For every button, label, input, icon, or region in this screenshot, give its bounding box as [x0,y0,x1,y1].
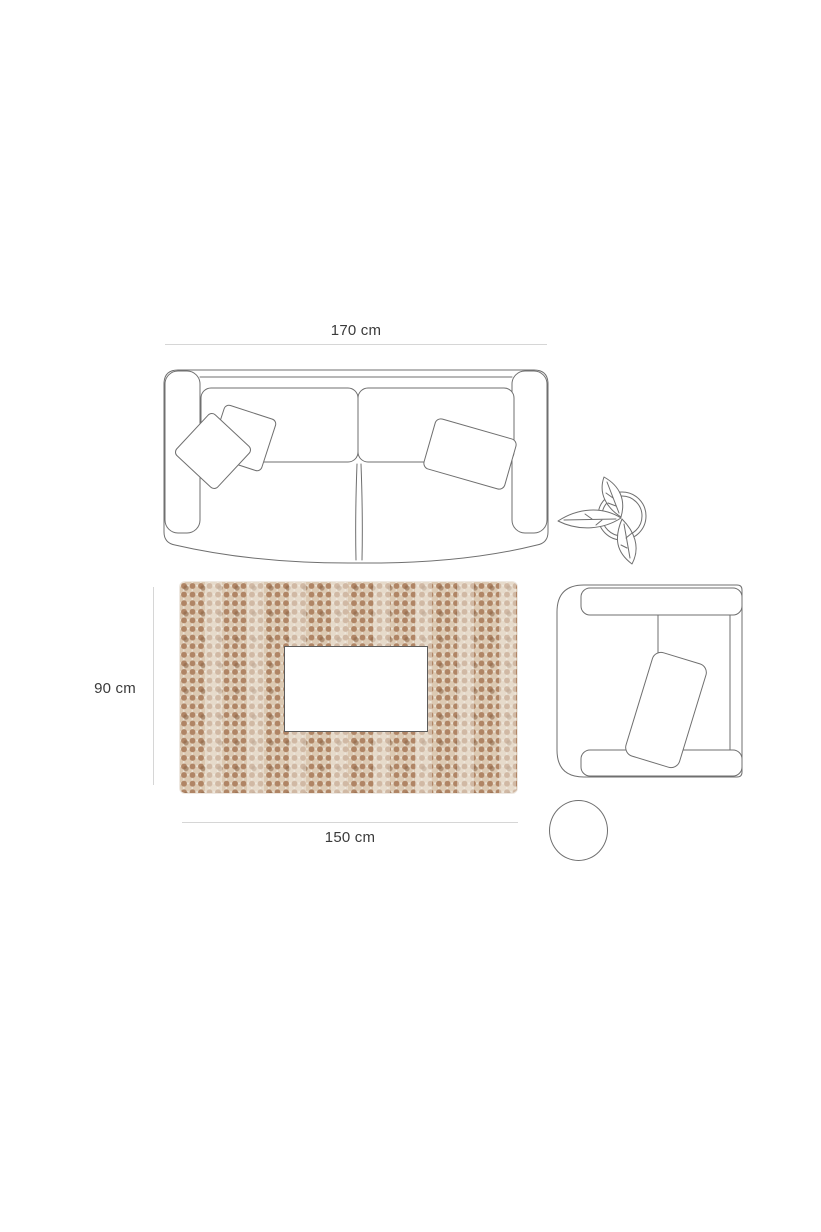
sofa-width-dimension-line [165,344,547,345]
side-table-top-view [549,800,608,861]
rug-width-label: 150 cm [182,830,518,846]
rug-height-label: 90 cm [85,681,145,697]
armchair-top-view-icon [554,582,746,780]
rug-dimension-diagram: 170 cm 90 cm 1 [0,0,821,1232]
rug-width-dimension-line [182,822,518,823]
coffee-table-top-view [284,646,428,732]
plant-top-view-icon [550,458,668,578]
sofa-width-label: 170 cm [165,323,547,339]
rug-height-dimension-line [153,587,154,785]
sofa-top-view-icon [163,367,549,565]
